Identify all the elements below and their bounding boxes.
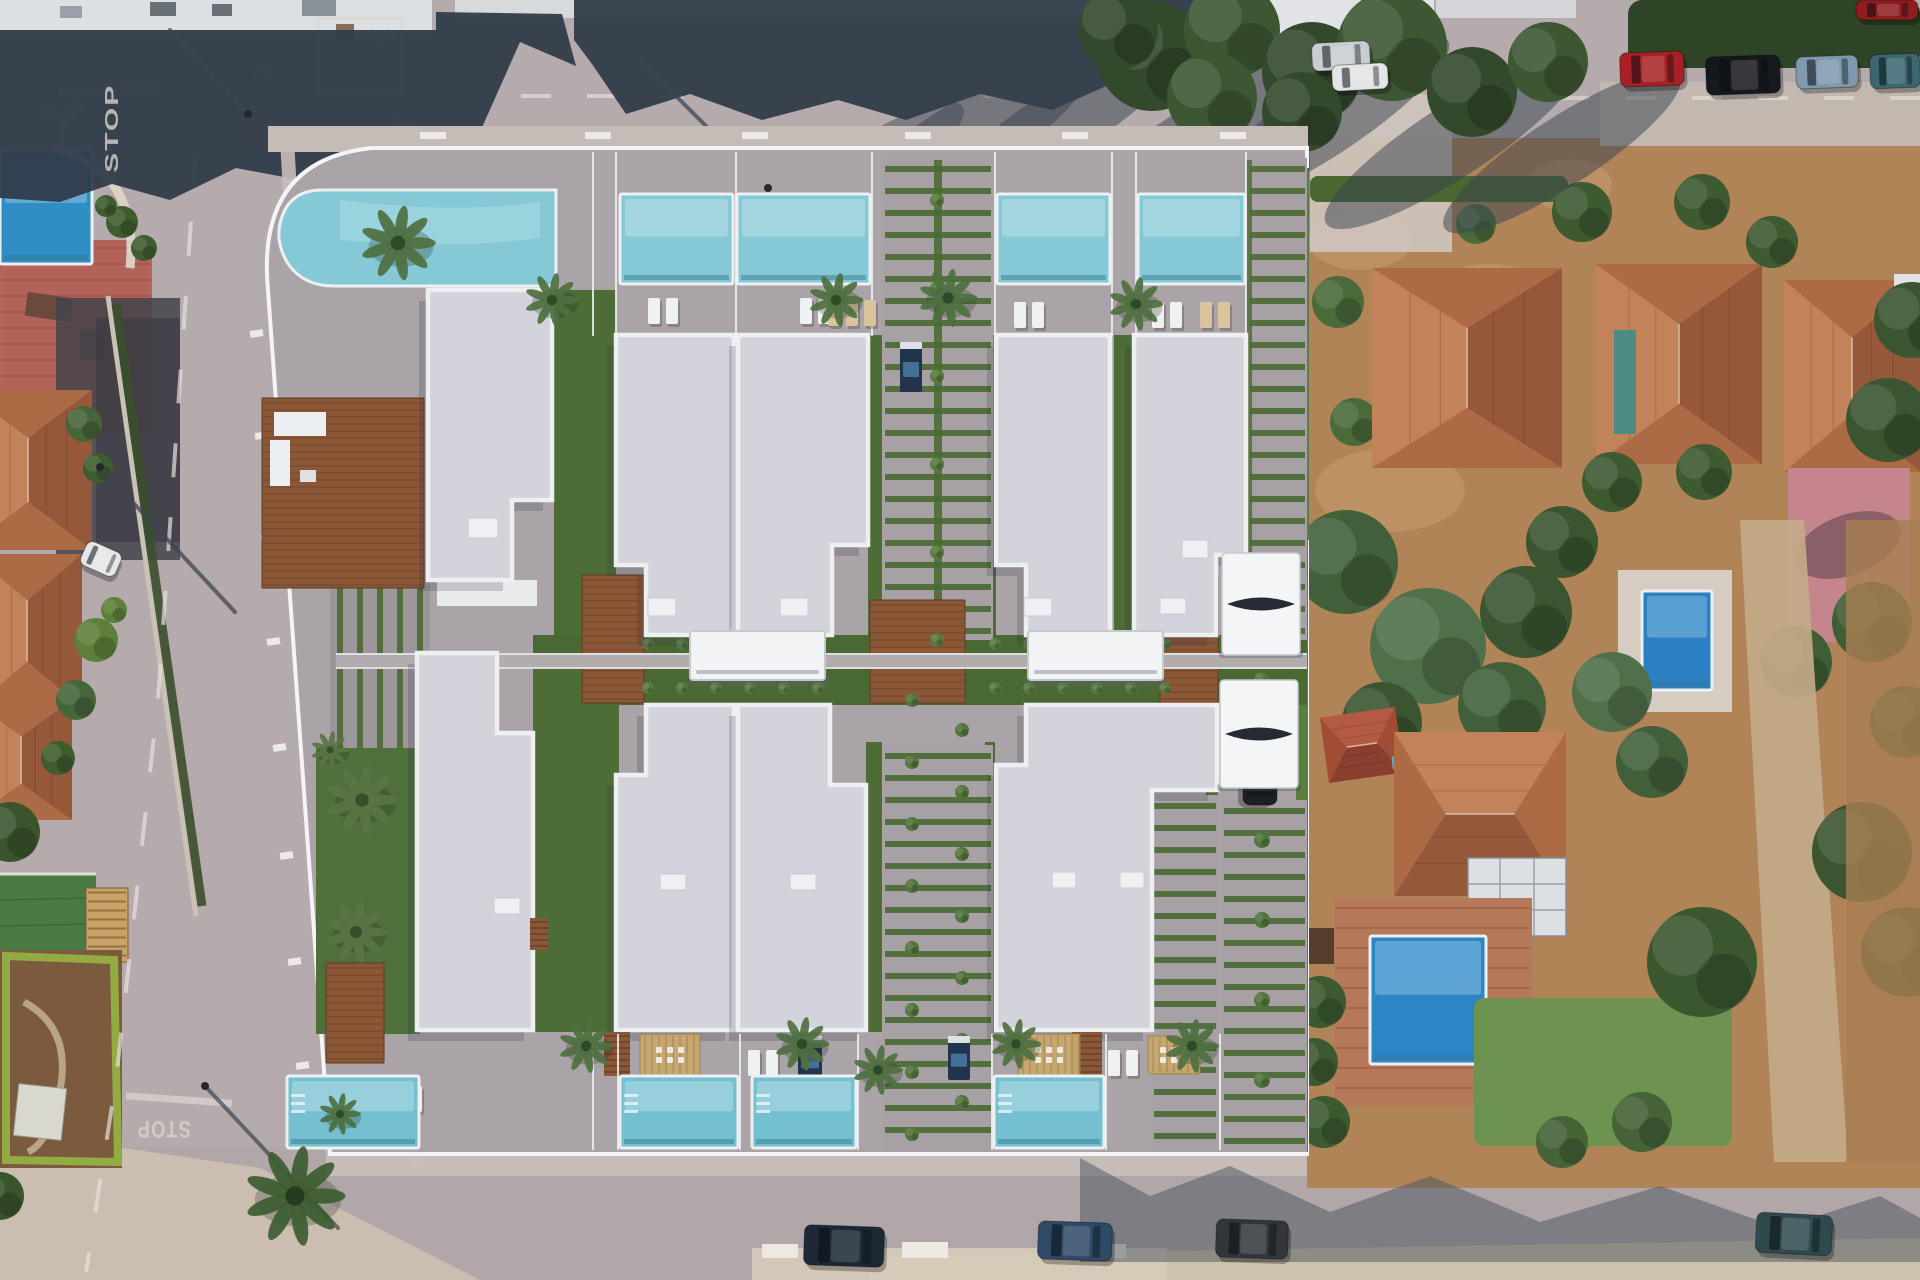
aerial-photo-canvas	[0, 0, 1920, 1280]
aerial-screenshot: STOP STOP	[0, 0, 1920, 1280]
stop-road-marking-north: STOP	[102, 84, 123, 173]
development	[245, 148, 1309, 1247]
stop-road-marking-south: STOP	[136, 1114, 190, 1141]
right-properties	[1290, 94, 1920, 1188]
